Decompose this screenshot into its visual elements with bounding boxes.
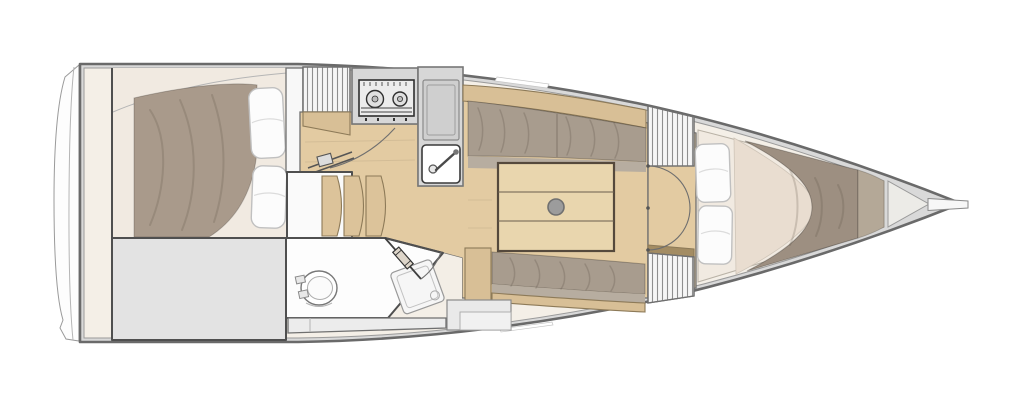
bulkhead-hinge-top	[646, 164, 650, 168]
companionway	[287, 172, 386, 238]
aft-berth-pillow-2	[251, 165, 287, 228]
hatch-bottom-stripes	[648, 253, 694, 303]
sink-faucet-base	[453, 149, 459, 155]
aft-storage-area	[112, 238, 286, 340]
boat-floorplan	[0, 0, 1024, 400]
companionway-landing	[287, 172, 352, 238]
table-knob	[548, 199, 564, 215]
salon-table	[498, 163, 614, 251]
bulkhead-door-stop	[646, 206, 650, 210]
aft-berth-pillow-1	[248, 87, 286, 159]
bowsprit	[928, 199, 968, 211]
companionway-step-1	[322, 176, 342, 236]
sink-unit	[418, 67, 463, 186]
companionway-step-3	[366, 176, 386, 236]
hatch-top-stripes	[648, 106, 694, 166]
transom-outline	[54, 65, 79, 341]
companionway-step-2	[344, 176, 364, 236]
aft-cabin	[112, 68, 300, 238]
bulkhead-hatch-top	[648, 106, 694, 166]
vberth-blanket-light	[858, 170, 884, 238]
vberth-pillow-2	[697, 206, 732, 265]
vberth-pillow-1	[695, 143, 731, 202]
bow	[888, 181, 968, 227]
galley-locker-hatch-stripes	[303, 67, 350, 112]
toilet-seat	[308, 277, 333, 300]
stove-unit	[352, 68, 418, 124]
bulkhead-hatch-bottom	[648, 245, 694, 303]
head-step-box-inner	[460, 312, 511, 330]
bulkhead-hinge-bottom	[646, 248, 650, 252]
transom-shape	[54, 65, 79, 341]
stove-burner-right-center	[397, 96, 402, 101]
stove-burner-left-center	[372, 96, 378, 102]
boat-floorplan-canvas	[0, 0, 1024, 400]
sink-cabinet-door	[423, 80, 459, 140]
